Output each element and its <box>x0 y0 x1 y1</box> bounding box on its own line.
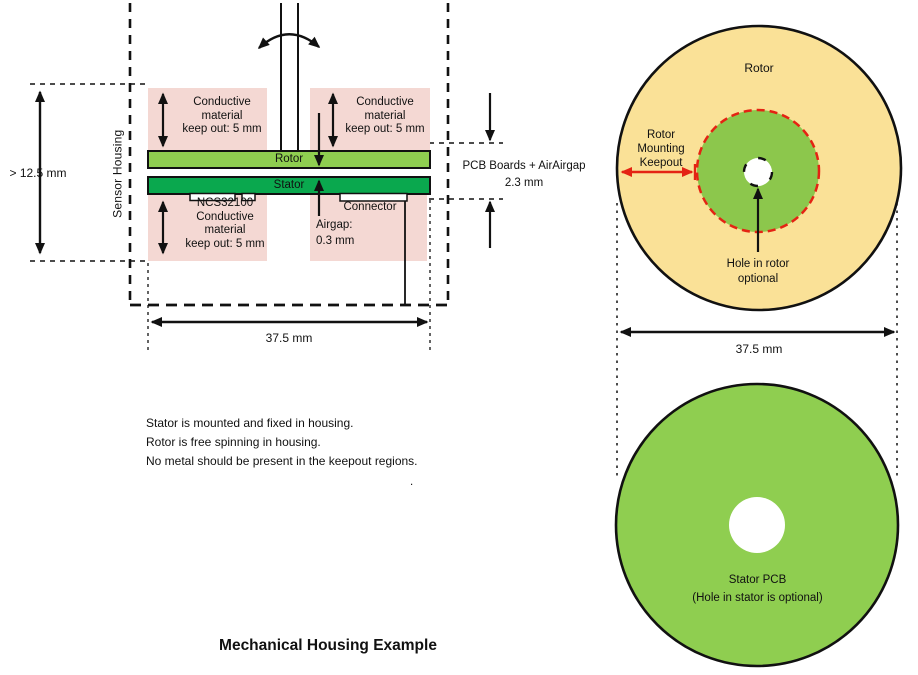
airgap-label: Airgap: 0.3 mm <box>316 218 386 249</box>
stray-period: . <box>410 476 420 490</box>
rotation-arrow-arc <box>259 34 319 48</box>
stator-pcb-label: Stator PCB (Hole in stator is optional) <box>640 572 875 607</box>
figure-title: Mechanical Housing Example <box>168 639 488 653</box>
housing-notes: Stator is mounted and fixed in housing. … <box>146 414 486 471</box>
stator-hole <box>729 497 785 553</box>
connector-label: Connector <box>330 201 410 215</box>
keepout-label-top-right: Conductive material keep out: 5 mm <box>323 96 447 137</box>
rotor-bar-label: Rotor <box>148 153 430 167</box>
rotor-mounting-keepout-label: Rotor Mounting Keepout <box>611 128 711 170</box>
mechanical-housing-figure: Conductive material keep out: 5 mm Condu… <box>0 0 918 675</box>
keepout-label-top-left: Conductive material keep out: 5 mm <box>160 96 284 137</box>
sensor-housing-label: Sensor Housing <box>111 114 125 234</box>
connector-body <box>340 194 407 202</box>
rotor-disc-label: Rotor <box>719 62 799 76</box>
height-dim-label: > 12.5 mm <box>2 167 74 181</box>
width-dim-label-left-view: 37.5 mm <box>239 332 339 346</box>
rotor-hole <box>744 158 772 186</box>
keepout-label-bottom-left: NCS32100 Conductive material keep out: 5… <box>161 197 289 251</box>
hole-in-rotor-label: Hole in rotor optional <box>697 257 819 286</box>
stator-bar-label: Stator <box>148 179 430 193</box>
width-dim-label-right-view: 37.5 mm <box>709 343 809 357</box>
pcb-stack-label: PCB Boards + AirAirgap 2.3 mm <box>450 158 598 192</box>
